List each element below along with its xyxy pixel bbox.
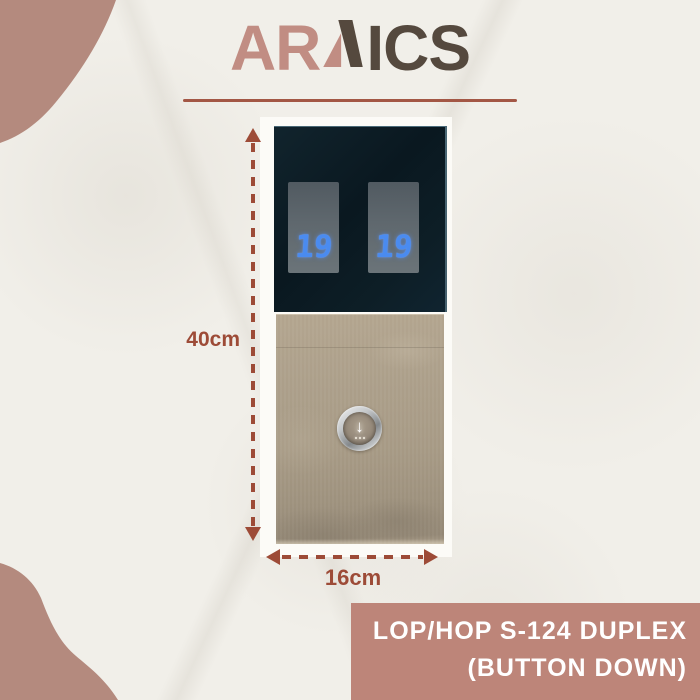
dimension-arrow-up-icon — [245, 128, 261, 142]
logo-text-ics: ICS — [366, 16, 470, 80]
logo-underline — [183, 99, 517, 102]
faceplate-bottom-edge — [276, 539, 444, 544]
brand-logo: AR ICS — [0, 16, 700, 80]
down-call-button: ↓ — [337, 406, 382, 451]
braille-dots — [355, 437, 365, 439]
floor-number-left: 19 — [293, 229, 333, 273]
dimension-arrow-down-icon — [245, 527, 261, 541]
dimension-arrow-left-icon — [266, 549, 280, 565]
floor-number-right: 19 — [373, 229, 413, 273]
width-dimension-label: 16cm — [300, 565, 406, 591]
width-dimension-line — [282, 555, 423, 559]
dimension-arrow-right-icon — [424, 549, 438, 565]
caption-line1: LOP/HOP S-124 DUPLEX — [351, 613, 687, 650]
caption-band: LOP/HOP S-124 DUPLEX (BUTTON DOWN) — [351, 603, 700, 700]
logo-n-icon — [323, 20, 363, 67]
height-dimension-line — [251, 143, 255, 527]
floor-display-right: 19 — [368, 182, 419, 273]
down-arrow-icon: ↓ — [355, 418, 364, 435]
button-face: ↓ — [343, 412, 376, 445]
decorative-blob-bottom-left — [0, 558, 125, 700]
height-dimension-label: 40cm — [176, 328, 240, 352]
faceplate-seam — [276, 347, 444, 348]
page-background: AR ICS 19 19 ↓ 40cm 16cm LOP/HOP S-124 D… — [0, 0, 700, 700]
logo-text-ar: AR — [230, 16, 320, 80]
caption-line2: (BUTTON DOWN) — [351, 650, 687, 687]
floor-display-left: 19 — [288, 182, 339, 273]
